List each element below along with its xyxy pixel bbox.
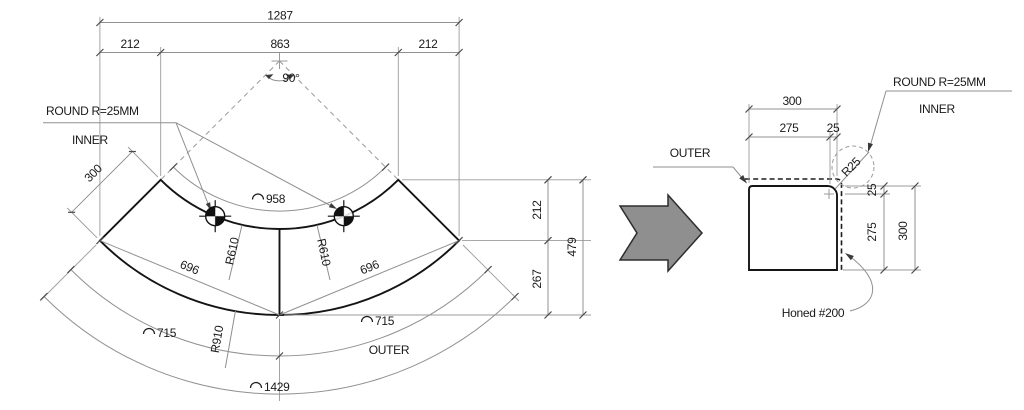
detail-view: ROUND R=25MM INNER OUTER 300 275 25 R25 …: [653, 75, 1012, 320]
detail-round-callout: [866, 91, 1012, 153]
detail-dim-right-lower: 275: [865, 222, 879, 242]
main-dim-inner-radius-right: R610: [314, 237, 334, 267]
radius-leaders: [225, 225, 330, 368]
main-dim-inner-radius-left: R610: [222, 236, 242, 266]
block-arrow-shape: [620, 195, 702, 271]
registration-target-left: [199, 200, 231, 232]
detail-label-round: ROUND R=25MM: [893, 75, 986, 89]
main-dim-total-width: 1287: [267, 9, 293, 23]
drawing-canvas: 1287 212 863 212 90° ROUND R=25MM INNER …: [0, 0, 1024, 410]
detail-dim-top-total: 300: [782, 94, 802, 108]
detail-label-inner: INNER: [919, 102, 955, 116]
main-dim-depth: 300: [81, 161, 105, 185]
main-dim-center-width: 863: [270, 37, 290, 51]
main-dim-outer-arc-right: 715: [375, 314, 395, 328]
main-dim-right-lower: 267: [530, 269, 544, 289]
main-dim-outer-arc-total: 1429: [264, 380, 290, 394]
detail-outer-callout: [653, 167, 749, 185]
main-dimension-lines: [44, 23, 583, 395]
main-dim-left-offset: 212: [120, 37, 140, 51]
detail-dim-top-right: 25: [827, 121, 840, 135]
main-dim-right-offset: 212: [418, 37, 438, 51]
detail-dashed-outline: [745, 179, 842, 271]
detail-dim-top-left: 275: [779, 121, 799, 135]
main-label-outer: OUTER: [369, 343, 410, 357]
corner-arc-center-cross: [824, 189, 834, 199]
detail-dim-right-total: 300: [896, 221, 910, 241]
detail-label-outer: OUTER: [670, 146, 711, 160]
honed-finish-callout: [844, 251, 873, 311]
detail-piece: [749, 186, 837, 270]
main-dim-angle: 90°: [282, 71, 300, 85]
cad-drawing: 1287 212 863 212 90° ROUND R=25MM INNER …: [0, 0, 1024, 410]
detail-dim-corner-radius: R25: [839, 154, 864, 179]
main-dimension-ticks: [41, 19, 587, 360]
main-dim-inner-arc: 958: [266, 192, 286, 206]
apex-construction-lines: [161, 53, 399, 180]
main-dim-right-upper: 212: [530, 200, 544, 220]
main-extension-lines: [40, 17, 591, 401]
main-label-round: ROUND R=25MM: [46, 104, 139, 118]
main-label-inner: INNER: [72, 133, 108, 147]
block-arrow: [620, 195, 702, 271]
main-dim-outer-arc-left: 715: [157, 326, 177, 340]
main-view: 1287 212 863 212 90° ROUND R=25MM INNER …: [40, 9, 591, 402]
detail-dim-right-upper: 25: [865, 183, 879, 196]
main-dim-outer-radius: R910: [208, 324, 227, 354]
main-dim-right-total: 479: [565, 237, 579, 257]
detail-label-finish: Honed #200: [782, 306, 845, 320]
